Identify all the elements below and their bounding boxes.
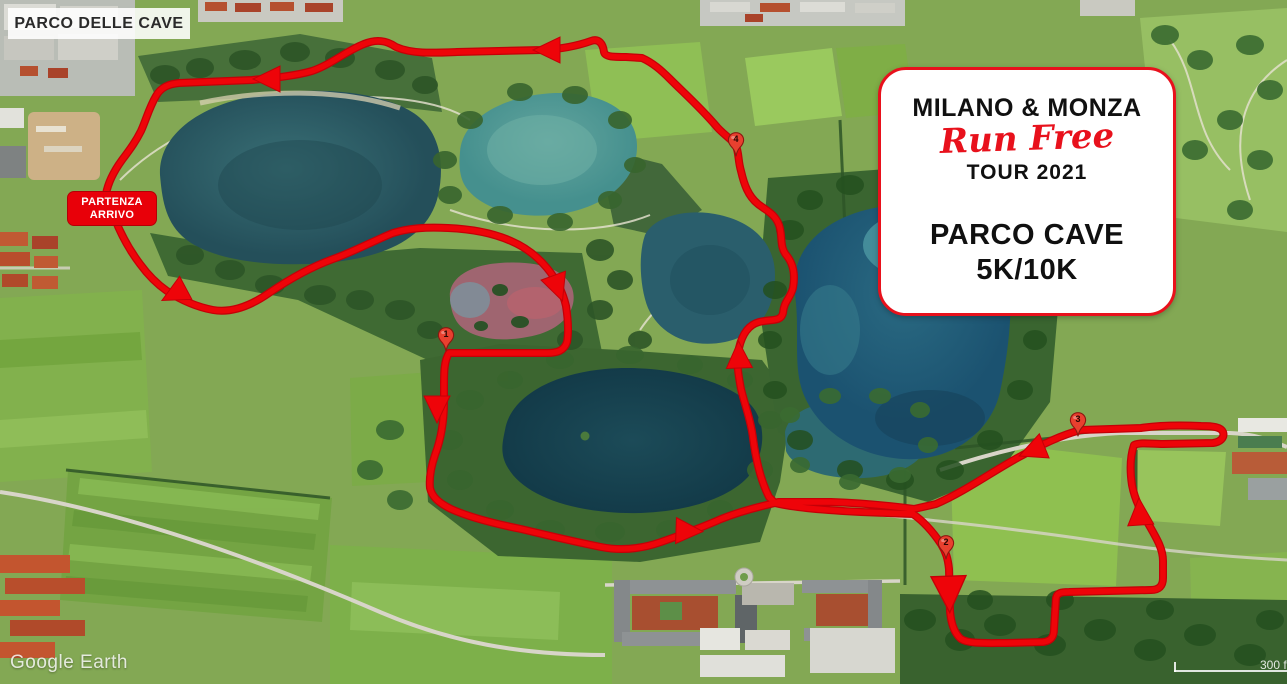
route-marker-1[interactable]: 1 [437,326,455,353]
race-course-map: PARCO DELLE CAVE PARTENZA ARRIVO 1 2 3 4… [0,0,1287,684]
event-info-card: MILANO & MONZA Run Free TOUR 2021 PARCO … [878,67,1176,316]
event-tour-year: TOUR 2021 [881,161,1173,185]
start-label: PARTENZA [81,196,142,209]
route-marker-4[interactable]: 4 [727,131,745,158]
finish-label: ARRIVO [90,209,135,222]
route-marker-1-number: 1 [437,329,455,339]
route-marker-4-number: 4 [727,134,745,144]
route-marker-3[interactable]: 3 [1069,411,1087,438]
map-area-label: PARCO DELLE CAVE [8,8,190,39]
course-name: PARCO CAVE [881,219,1173,252]
course-distances: 5K/10K [881,254,1173,287]
google-earth-watermark: Google Earth [10,652,128,674]
map-area-label-text: PARCO DELLE CAVE [14,15,183,33]
scale-bar-label: 300 f [1260,658,1287,672]
map-scale-bar: 300 f [1172,662,1287,676]
route-marker-2-number: 2 [937,537,955,547]
route-marker-3-number: 3 [1069,414,1087,424]
start-finish-badge: PARTENZA ARRIVO [67,191,157,226]
route-marker-2[interactable]: 2 [937,534,955,561]
